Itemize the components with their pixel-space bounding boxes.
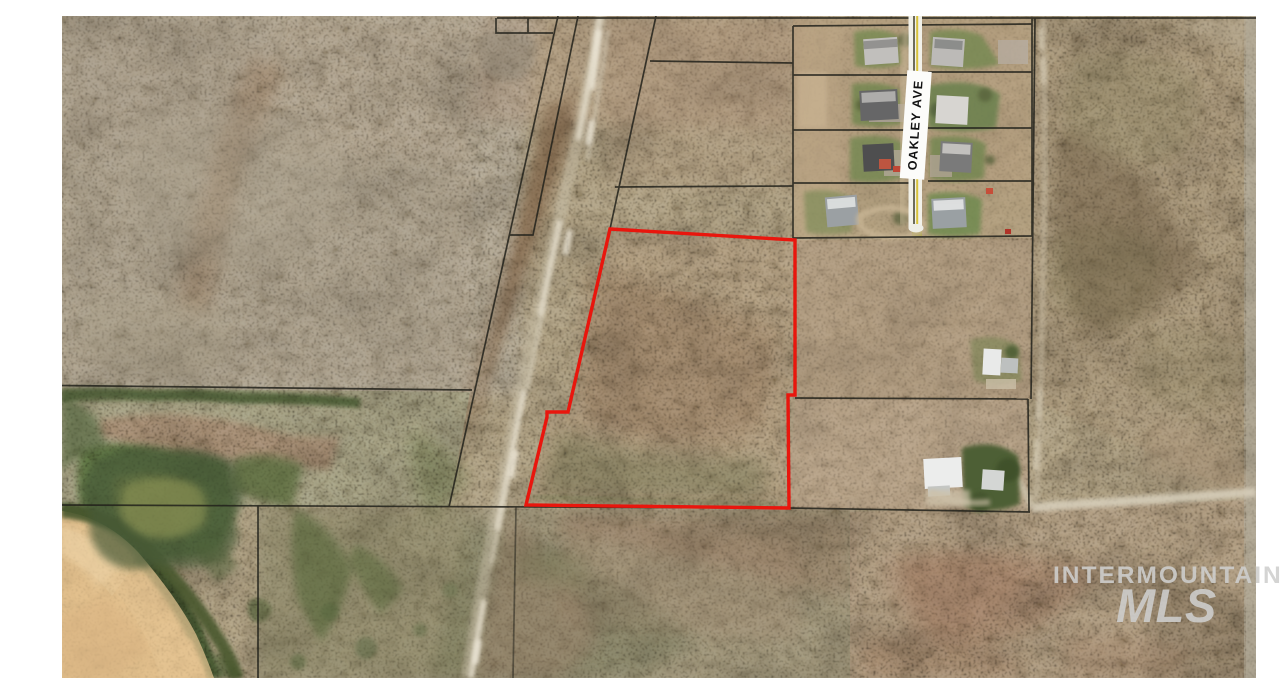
svg-text:MLS: MLS: [1116, 579, 1217, 632]
